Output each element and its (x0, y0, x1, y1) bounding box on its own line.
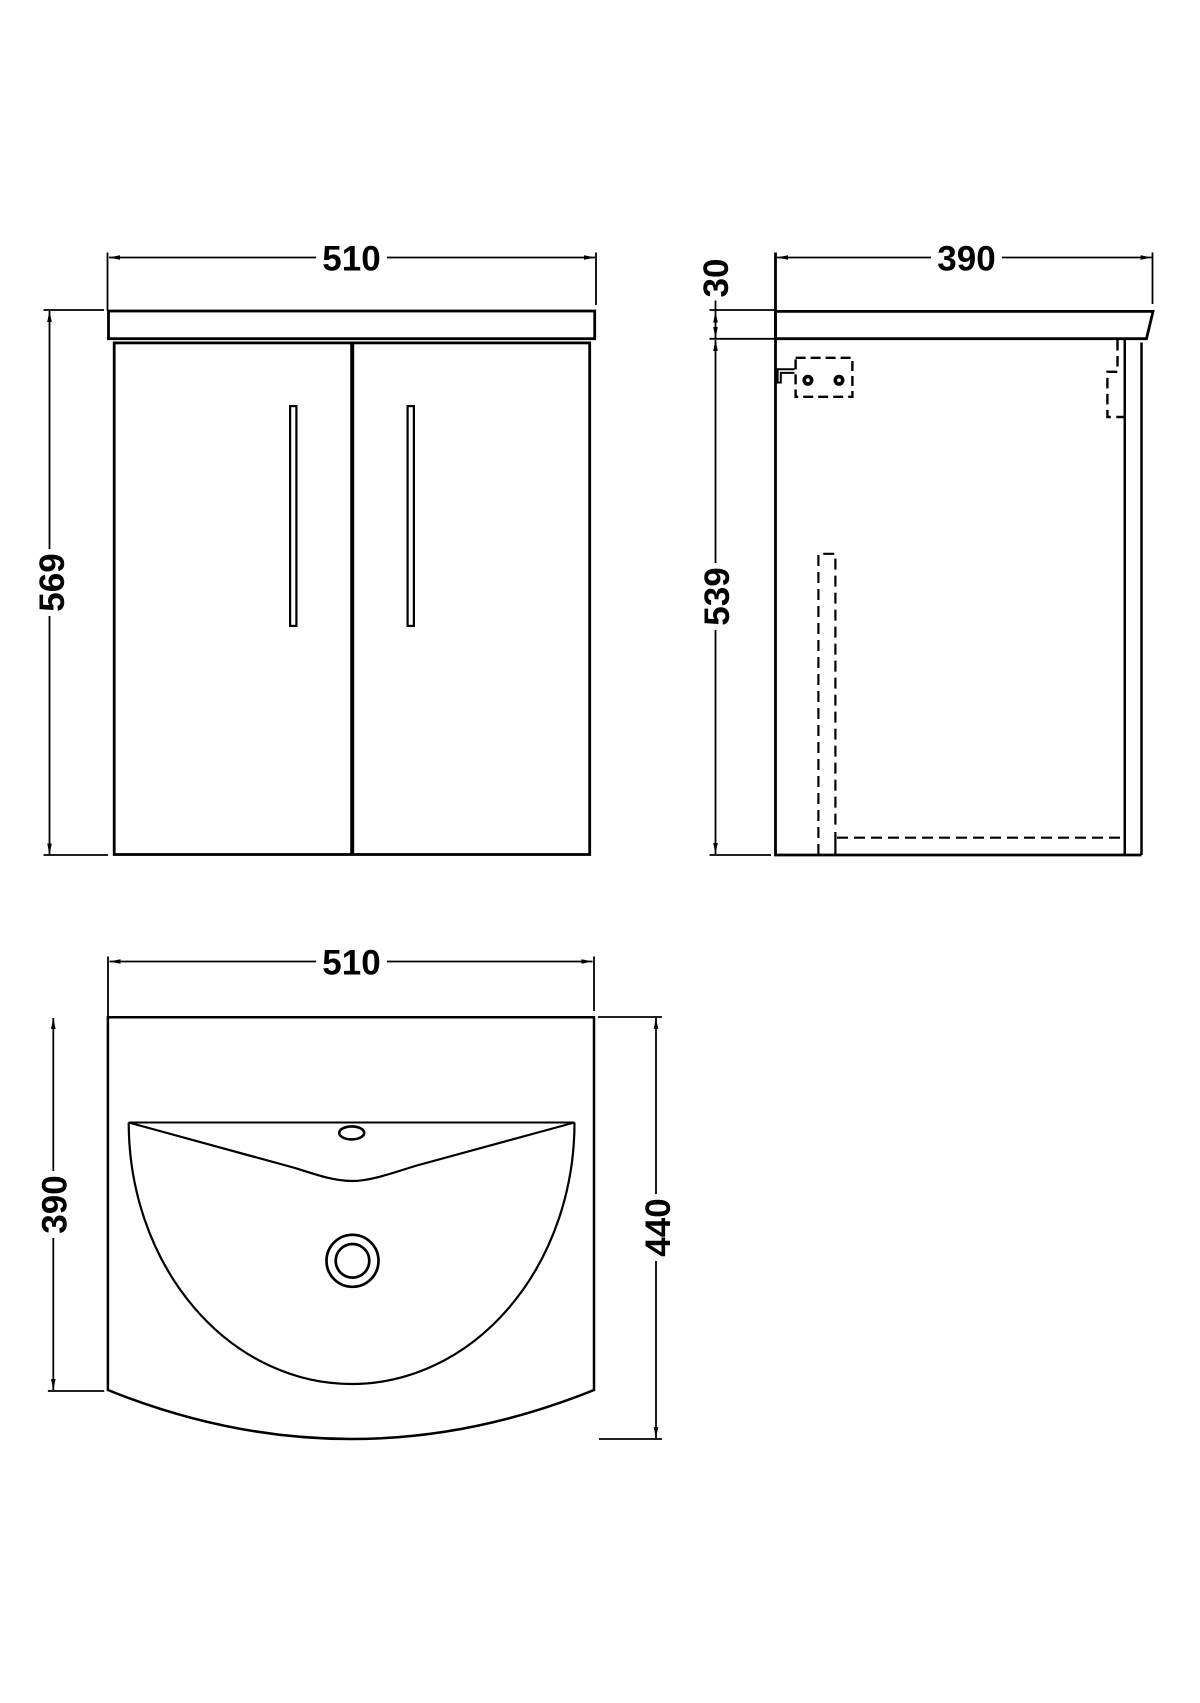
svg-text:390: 390 (36, 1175, 75, 1233)
svg-text:390: 390 (937, 240, 995, 279)
svg-text:440: 440 (639, 1198, 678, 1256)
svg-text:569: 569 (33, 553, 72, 611)
svg-text:539: 539 (698, 567, 737, 625)
svg-text:30: 30 (697, 259, 736, 298)
svg-text:510: 510 (322, 240, 380, 279)
svg-text:510: 510 (322, 944, 380, 983)
